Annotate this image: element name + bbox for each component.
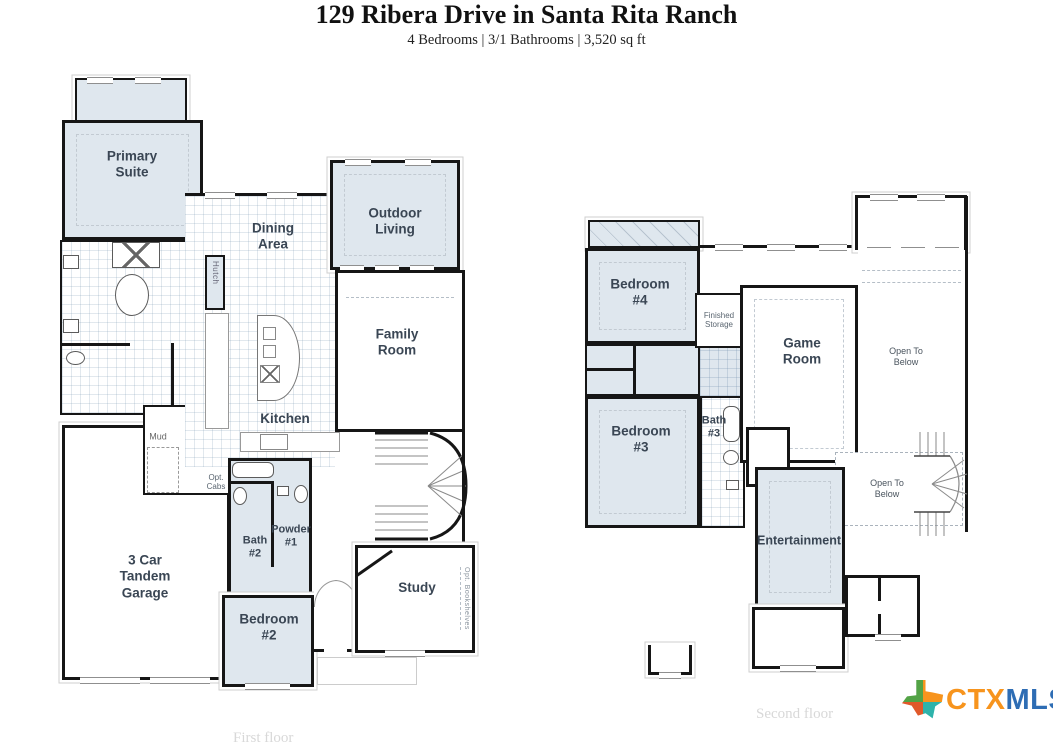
window	[405, 159, 431, 166]
staircase	[912, 430, 970, 538]
mud-label: Mud	[149, 432, 167, 443]
opt-bookshelves-label: Opt. Bookshelves	[460, 567, 470, 630]
bath-sink	[726, 480, 739, 490]
garage-door	[80, 677, 140, 684]
hutch-label: Hutch	[211, 261, 220, 284]
kitchen-counter	[205, 313, 229, 429]
closet-outline	[147, 447, 179, 493]
window	[780, 665, 816, 672]
first-floor-caption: First floor	[233, 730, 293, 745]
powder1-label: Powder #1	[271, 524, 311, 551]
wall	[60, 343, 130, 346]
second-floor-plan: Bedroom #4 Bedroom #3 Finished Storage B…	[575, 190, 1015, 690]
primary-suite-bay-window	[75, 78, 187, 122]
window	[245, 683, 290, 690]
ceiling-break-line	[862, 282, 961, 283]
window	[267, 192, 297, 199]
bathtub	[115, 274, 149, 316]
window	[767, 244, 795, 251]
opt-cabs-label: Opt. Cabs	[207, 473, 226, 491]
ceiling-break-line	[862, 270, 961, 271]
window	[917, 194, 945, 201]
ctxmls-logo: CTX MLS	[902, 680, 1053, 720]
toilet	[723, 450, 739, 465]
wall	[228, 481, 274, 484]
texas-icon-teal	[923, 702, 944, 720]
bedroom3-label: Bedroom #3	[611, 424, 670, 457]
toilet	[66, 351, 85, 365]
bathtub	[232, 462, 274, 478]
island-sink	[260, 365, 280, 383]
game-room-label: Game Room	[783, 336, 821, 369]
texas-icon-green	[902, 680, 923, 702]
wall	[314, 649, 324, 652]
texas-icon-red	[902, 702, 923, 720]
second-floor-caption: Second floor	[756, 706, 833, 723]
wall	[462, 432, 465, 545]
open-to-below-upper-label: Open To Below	[889, 346, 923, 368]
kitchen-label: Kitchen	[260, 411, 310, 427]
shower	[112, 242, 160, 268]
window	[819, 244, 847, 251]
island-cooktop	[263, 345, 276, 358]
page-title: 129 Ribera Drive in Santa Rita Ranch	[0, 0, 1053, 30]
window	[135, 77, 161, 84]
island-cooktop	[263, 327, 276, 340]
window	[205, 192, 235, 199]
kitchen-counter	[240, 432, 340, 452]
header: 129 Ribera Drive in Santa Rita Ranch 4 B…	[0, 0, 1053, 49]
toilet	[294, 485, 308, 503]
floor-plan-page: 129 Ribera Drive in Santa Rita Ranch 4 B…	[0, 0, 1053, 745]
room-below-entertainment	[752, 607, 845, 669]
texas-icon-orange	[923, 680, 944, 702]
front-porch	[317, 657, 417, 685]
toilet	[233, 487, 247, 505]
first-floor-plan: Primary Suite 3 Car Tandem Garage Mud Op…	[55, 75, 507, 690]
window	[385, 650, 425, 657]
open-to-below-lower-label: Open To Below	[870, 478, 904, 500]
kitchen-sink	[260, 434, 288, 450]
texas-icon	[902, 680, 944, 720]
garage-label: 3 Car Tandem Garage	[120, 552, 171, 601]
vanity-sink	[63, 255, 79, 269]
window	[345, 159, 371, 166]
open-to-below-upper	[858, 250, 965, 422]
window	[715, 244, 743, 251]
staircase	[372, 430, 468, 542]
family-room-label: Family Room	[376, 327, 419, 360]
entertainment-label: Entertainment	[757, 533, 841, 548]
bedroom4-bay-window	[588, 220, 700, 248]
wall	[878, 575, 881, 601]
bedroom2-label: Bedroom #2	[239, 612, 298, 645]
wall-detail	[648, 645, 692, 675]
primary-suite-label: Primary Suite	[107, 149, 157, 182]
dining-area-label: Dining Area	[252, 221, 294, 254]
bath3-label: Bath #3	[702, 415, 726, 442]
bath2-label: Bath #2	[243, 535, 267, 562]
room-right-bottom	[845, 575, 920, 637]
window	[87, 77, 113, 84]
room-bedroom-3	[585, 396, 700, 528]
hallway	[700, 348, 745, 396]
logo-text-ctx: CTX	[946, 686, 1006, 715]
upper-bay-window	[855, 195, 967, 250]
garage-door	[150, 677, 210, 684]
ceiling-break-line	[346, 297, 454, 298]
window	[870, 194, 898, 201]
finished-storage-label: Finished Storage	[704, 311, 734, 329]
powder-sink	[277, 486, 289, 496]
outdoor-living-label: Outdoor Living	[368, 206, 421, 239]
study-label: Study	[398, 580, 436, 596]
bedroom4-label: Bedroom #4	[610, 277, 669, 310]
window	[875, 634, 901, 641]
wall	[585, 368, 635, 371]
vanity-sink	[63, 319, 79, 333]
window	[659, 672, 681, 679]
page-subtitle: 4 Bedrooms | 3/1 Bathrooms | 3,520 sq ft	[0, 32, 1053, 49]
logo-text-mls: MLS	[1006, 686, 1053, 715]
